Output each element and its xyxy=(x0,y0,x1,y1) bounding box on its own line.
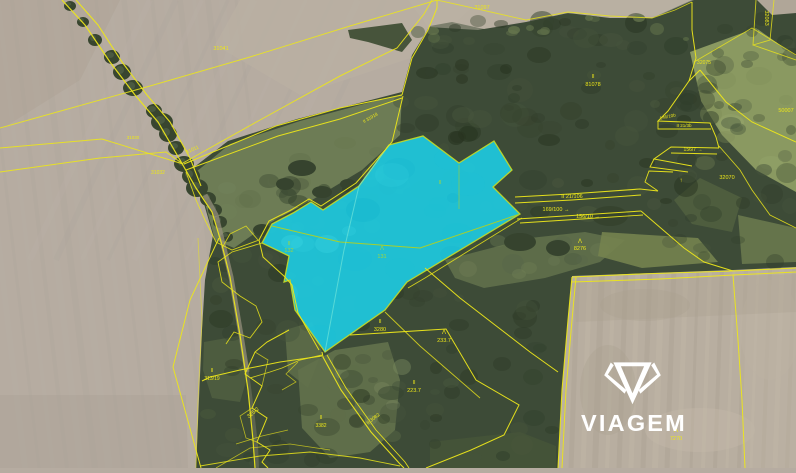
svg-text:32075: 32075 xyxy=(697,60,711,66)
svg-text:II 21/106: II 21/106 xyxy=(561,194,582,200)
svg-text:156/10 →: 156/10 → xyxy=(576,214,600,220)
svg-text:II: II xyxy=(211,368,214,374)
svg-text:32070: 32070 xyxy=(719,175,734,181)
svg-text:VIAGEM: VIAGEM xyxy=(581,410,687,436)
svg-text:II: II xyxy=(378,319,382,325)
svg-text:131: 131 xyxy=(377,254,386,260)
svg-text:313/19: 313/19 xyxy=(204,376,220,382)
svg-text:81078: 81078 xyxy=(585,82,600,88)
svg-text:II: II xyxy=(591,74,595,80)
svg-text:II: II xyxy=(412,380,416,386)
svg-text:233.7: 233.7 xyxy=(437,338,451,344)
svg-text:31032: 31032 xyxy=(151,170,165,176)
svg-text:II 21/3b: II 21/3b xyxy=(676,123,692,128)
svg-text:8276: 8276 xyxy=(574,246,586,252)
svg-text:Λ: Λ xyxy=(442,330,446,336)
svg-text:↑: ↑ xyxy=(680,178,683,184)
svg-text:7270: 7270 xyxy=(670,436,682,442)
svg-text:31041: 31041 xyxy=(213,46,228,52)
svg-text:Λ: Λ xyxy=(380,246,384,252)
svg-text:II: II xyxy=(287,241,291,247)
svg-text:3382: 3382 xyxy=(315,423,326,429)
svg-text:31097: 31097 xyxy=(474,5,489,11)
svg-text:132: 132 xyxy=(284,248,293,254)
svg-text:3280: 3280 xyxy=(374,327,386,333)
svg-text:II: II xyxy=(320,415,323,421)
svg-text:Λ: Λ xyxy=(578,239,582,245)
svg-text:31030: 31030 xyxy=(127,135,140,140)
svg-text:II: II xyxy=(438,180,442,186)
svg-text:223.7: 223.7 xyxy=(407,388,421,394)
svg-text:50007: 50007 xyxy=(778,108,793,114)
svg-text:169/100 →: 169/100 → xyxy=(543,207,570,213)
svg-text:32083: 32083 xyxy=(763,10,769,25)
svg-text:156/7 →: 156/7 → xyxy=(684,147,703,153)
